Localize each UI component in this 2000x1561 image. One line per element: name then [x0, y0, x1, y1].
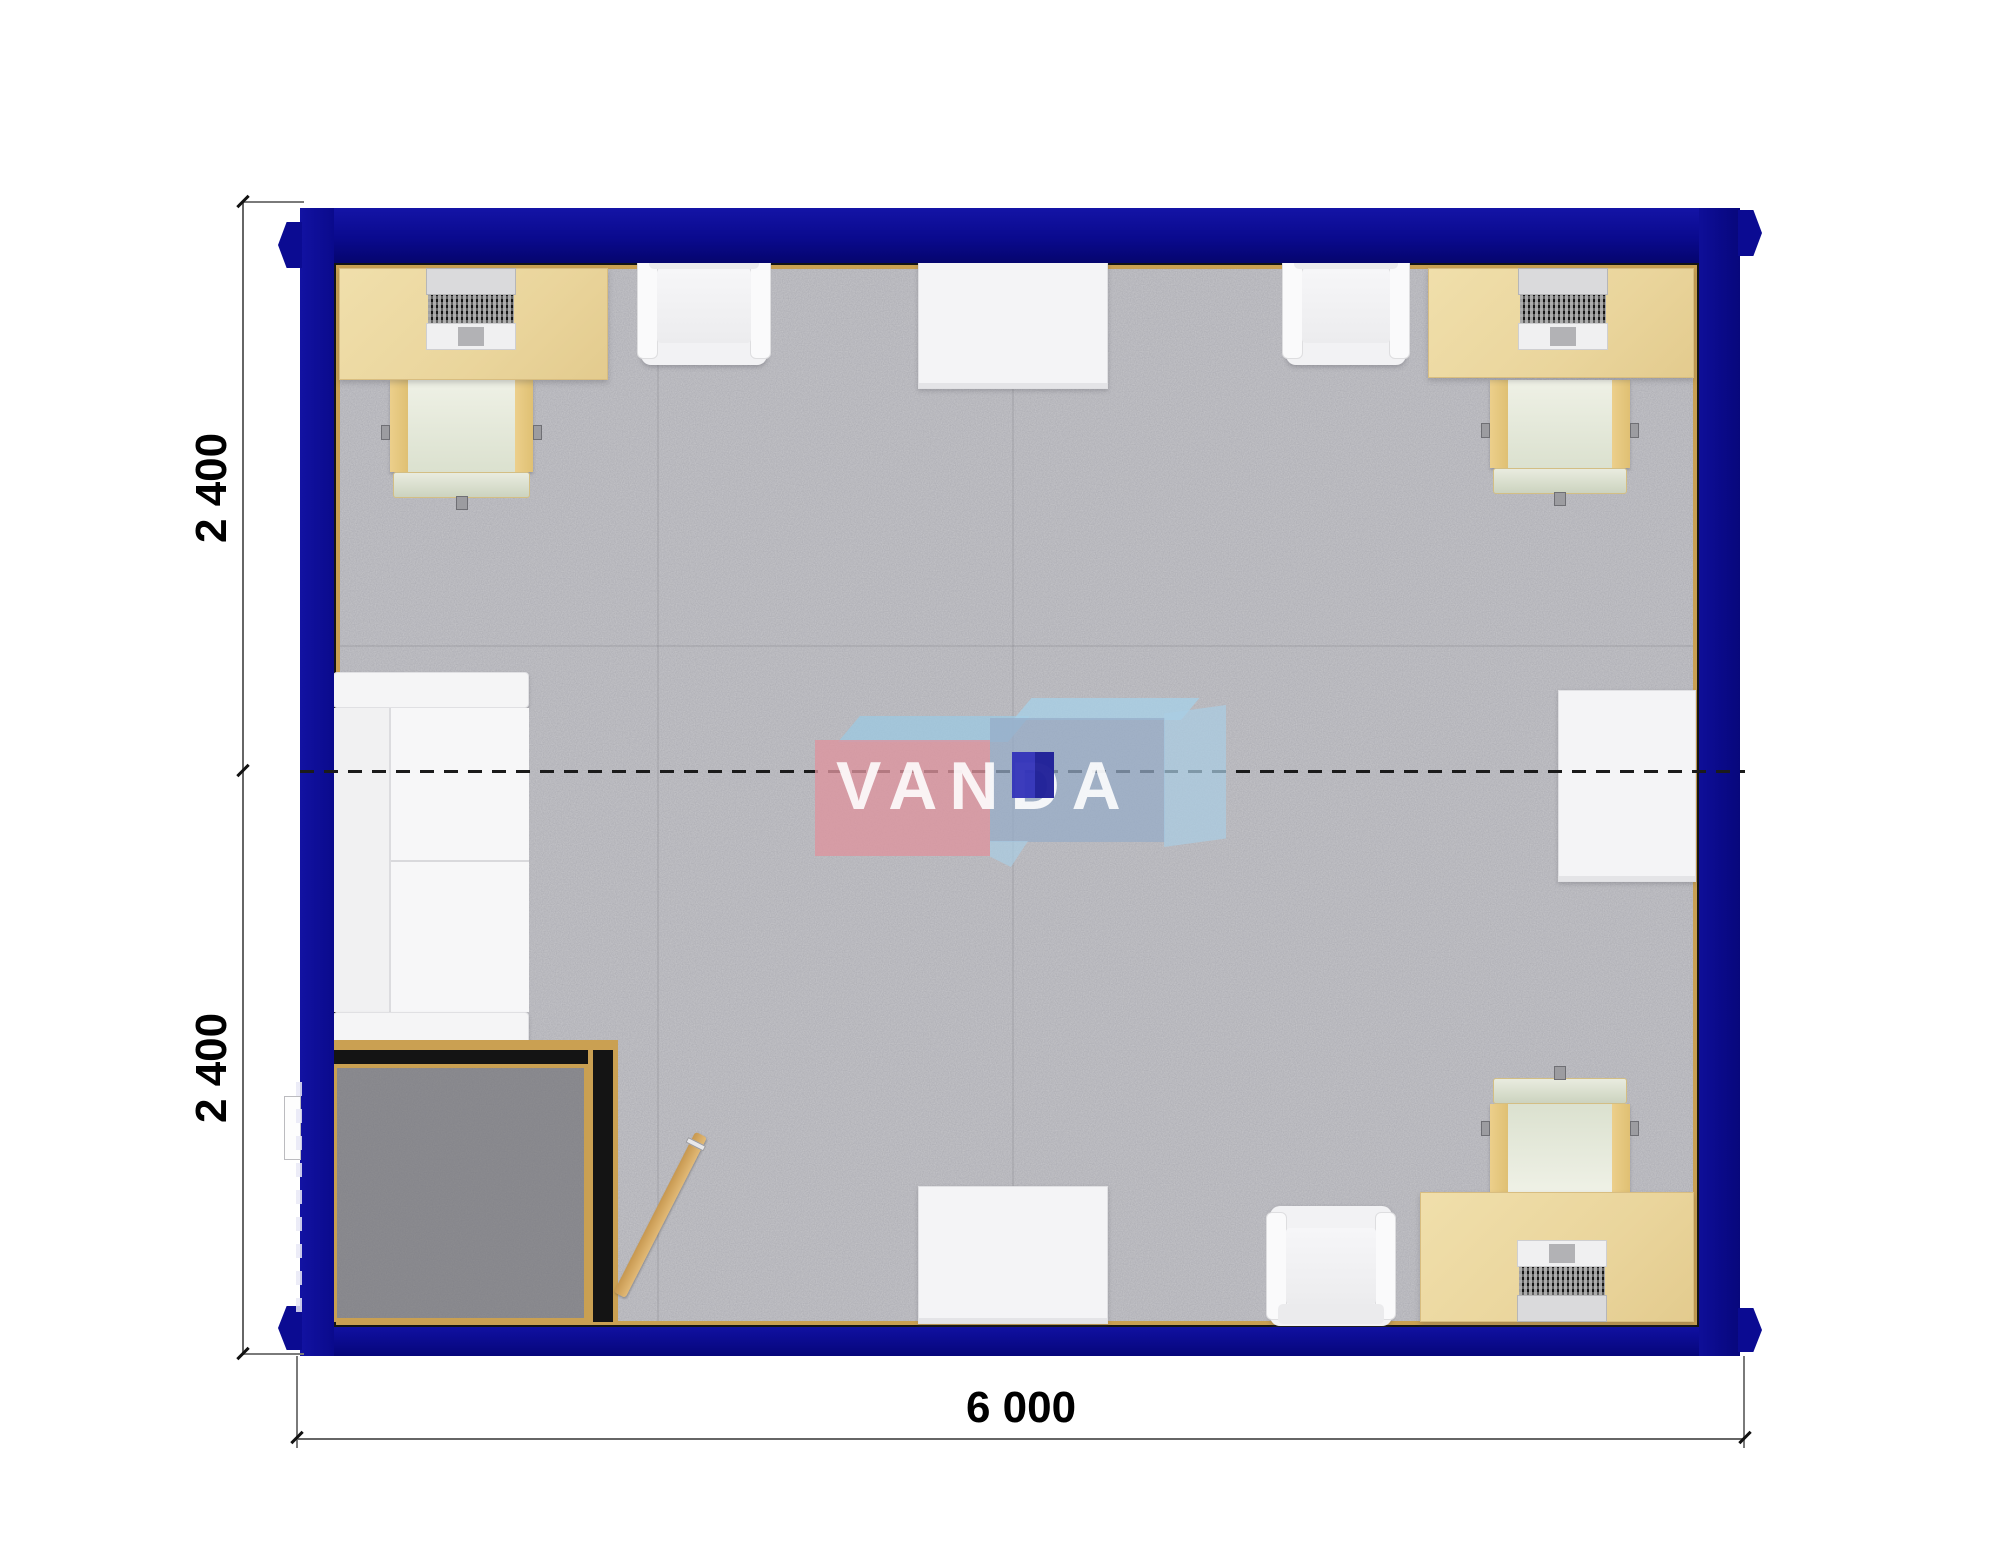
laptop-keyboard [428, 295, 514, 323]
chair-backrest [1493, 468, 1627, 494]
laptop-touchpad [1549, 1244, 1575, 1263]
armchair-seat [1286, 1228, 1376, 1304]
dimension-label-left-bottom: 2 400 [187, 1013, 237, 1123]
wall-top [300, 208, 1740, 263]
wall-left [300, 208, 334, 1356]
wall-bottom [300, 1327, 1740, 1356]
chair-seat [1508, 1104, 1612, 1192]
vestibule-partition-wall-right [593, 1050, 613, 1322]
chair-armrest [1490, 380, 1508, 468]
dimension-line-bottom [297, 1438, 1745, 1440]
armchair-top-right [1286, 247, 1406, 365]
carpet-seam-vertical-left [657, 262, 659, 1328]
armchair-top-left [641, 247, 767, 365]
chair-backrest [1493, 1078, 1627, 1104]
chair-caster [456, 496, 468, 510]
chair-caster [533, 425, 542, 440]
dimension-extension-top-left [242, 201, 304, 203]
chair-armrest [390, 380, 408, 472]
laptop-touchpad [458, 327, 484, 346]
door-handle [686, 1137, 707, 1151]
vestibule-carpet-texture [337, 1068, 584, 1318]
wall-right [1699, 208, 1740, 1356]
watermark-logo-text: VANDA [836, 752, 1133, 820]
laptop-touchpad [1550, 327, 1576, 346]
laptop-icon-top-left [426, 268, 516, 350]
armchair-bottom [1270, 1206, 1392, 1326]
dimension-line-left [242, 202, 244, 1355]
dimension-label-bottom: 6 000 [921, 1383, 1121, 1433]
laptop-keyboard [1519, 1267, 1605, 1295]
chair-caster [1554, 1066, 1566, 1080]
chair-armrest [1612, 380, 1630, 468]
chair-caster [1481, 1121, 1490, 1136]
laptop-icon-top-right [1518, 268, 1608, 350]
table-top-center [918, 247, 1108, 389]
carpet-seam-horizontal [333, 645, 1700, 647]
sofa-seats [391, 708, 529, 1012]
sofa-armrest-top [333, 672, 529, 708]
laptop-screen [426, 268, 516, 295]
corner-casting-bottom-right [1738, 1308, 1762, 1352]
vestibule-floor [333, 1064, 588, 1322]
chair-caster [1630, 423, 1639, 438]
armchair-backrest [1278, 1304, 1384, 1324]
table-bottom-center [918, 1186, 1108, 1324]
chair-armrest [1490, 1104, 1508, 1192]
dimension-label-left-top: 2 400 [187, 433, 237, 543]
chair-seat [408, 380, 515, 472]
dimension-extension-bottom-left [242, 1353, 304, 1355]
entry-vestibule [333, 1040, 618, 1322]
chair-caster [1630, 1121, 1639, 1136]
floor-plan-canvas: VANDA 2 400 2 400 6 000 [0, 0, 2000, 1561]
watermark-logo-square [1012, 752, 1054, 798]
office-chair-top-left [390, 380, 533, 498]
vestibule-wall-trim [613, 1050, 618, 1322]
chair-backrest [393, 472, 530, 498]
laptop-keyboard [1520, 295, 1606, 323]
sofa-cushion-seam [391, 860, 529, 862]
vestibule-wall-trim [333, 1040, 618, 1050]
table-right-wall [1558, 690, 1696, 882]
left-wall-opening-dashes [296, 1082, 302, 1318]
laptop-screen [1517, 1295, 1607, 1322]
laptop-screen [1518, 268, 1608, 295]
chair-caster [381, 425, 390, 440]
office-chair-bottom-right [1490, 1078, 1630, 1192]
corner-casting-top-left [278, 222, 302, 268]
armchair-seat [1302, 269, 1390, 343]
vestibule-partition-wall-top [333, 1050, 618, 1064]
armchair-seat [657, 269, 751, 343]
sofa-backrest [333, 708, 391, 1012]
chair-caster [1481, 423, 1490, 438]
laptop-icon-bottom-right [1517, 1240, 1607, 1322]
watermark-blue-box-right-flap [1164, 705, 1226, 847]
chair-armrest [1612, 1104, 1630, 1192]
chair-seat [1508, 380, 1612, 468]
chair-armrest [515, 380, 533, 472]
chair-caster [1554, 492, 1566, 506]
office-chair-top-right [1490, 380, 1630, 494]
sofa [333, 672, 529, 1048]
corner-casting-top-right [1738, 210, 1762, 256]
